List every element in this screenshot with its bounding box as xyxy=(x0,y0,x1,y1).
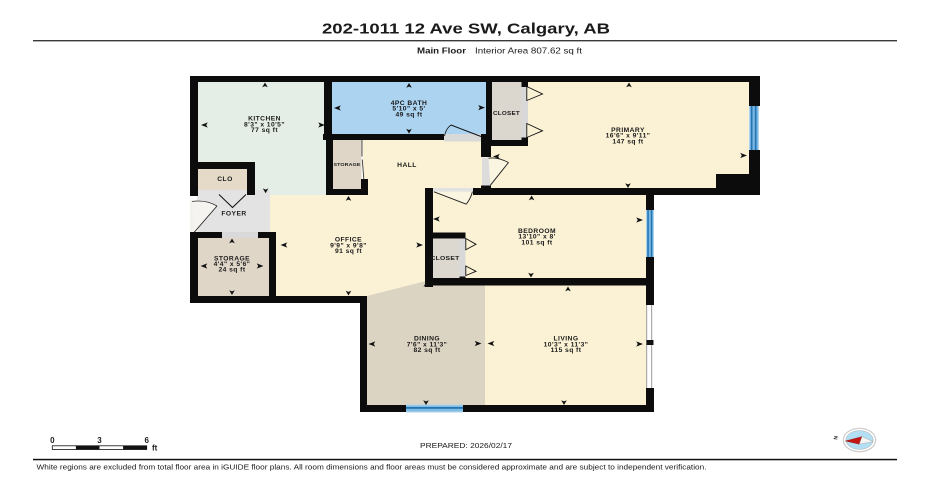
svg-text:CLOSET: CLOSET xyxy=(431,256,461,262)
svg-text:147 sq ft: 147 sq ft xyxy=(612,138,644,145)
svg-text:115 sq ft: 115 sq ft xyxy=(551,347,582,354)
svg-text:Interior Area 807.62 sq ft: Interior Area 807.62 sq ft xyxy=(475,46,583,56)
svg-text:77 sq ft: 77 sq ft xyxy=(251,127,278,134)
svg-text:PREPARED: 2026/02/17: PREPARED: 2026/02/17 xyxy=(420,443,512,450)
svg-text:STORAGE: STORAGE xyxy=(334,162,362,168)
svg-text:82 sq ft: 82 sq ft xyxy=(413,347,440,354)
svg-text:6: 6 xyxy=(144,436,149,445)
svg-text:CLO: CLO xyxy=(217,176,232,183)
svg-text:24 sq ft: 24 sq ft xyxy=(218,267,245,274)
svg-text:HALL: HALL xyxy=(397,162,417,169)
svg-text:101 sq ft: 101 sq ft xyxy=(521,239,553,246)
svg-text:3: 3 xyxy=(97,436,102,445)
svg-text:0: 0 xyxy=(50,436,55,445)
svg-text:202-1011 12 Ave SW, Calgary, A: 202-1011 12 Ave SW, Calgary, AB xyxy=(322,21,610,38)
svg-text:ft: ft xyxy=(152,444,158,453)
svg-text:91 sq ft: 91 sq ft xyxy=(335,248,362,255)
svg-text:White regions are excluded fro: White regions are excluded from total fl… xyxy=(37,465,707,472)
svg-text:CLOSET: CLOSET xyxy=(493,111,521,117)
svg-text:FOYER: FOYER xyxy=(221,210,246,217)
svg-text:Main Floor: Main Floor xyxy=(417,46,467,56)
svg-text:49 sq ft: 49 sq ft xyxy=(395,111,422,118)
